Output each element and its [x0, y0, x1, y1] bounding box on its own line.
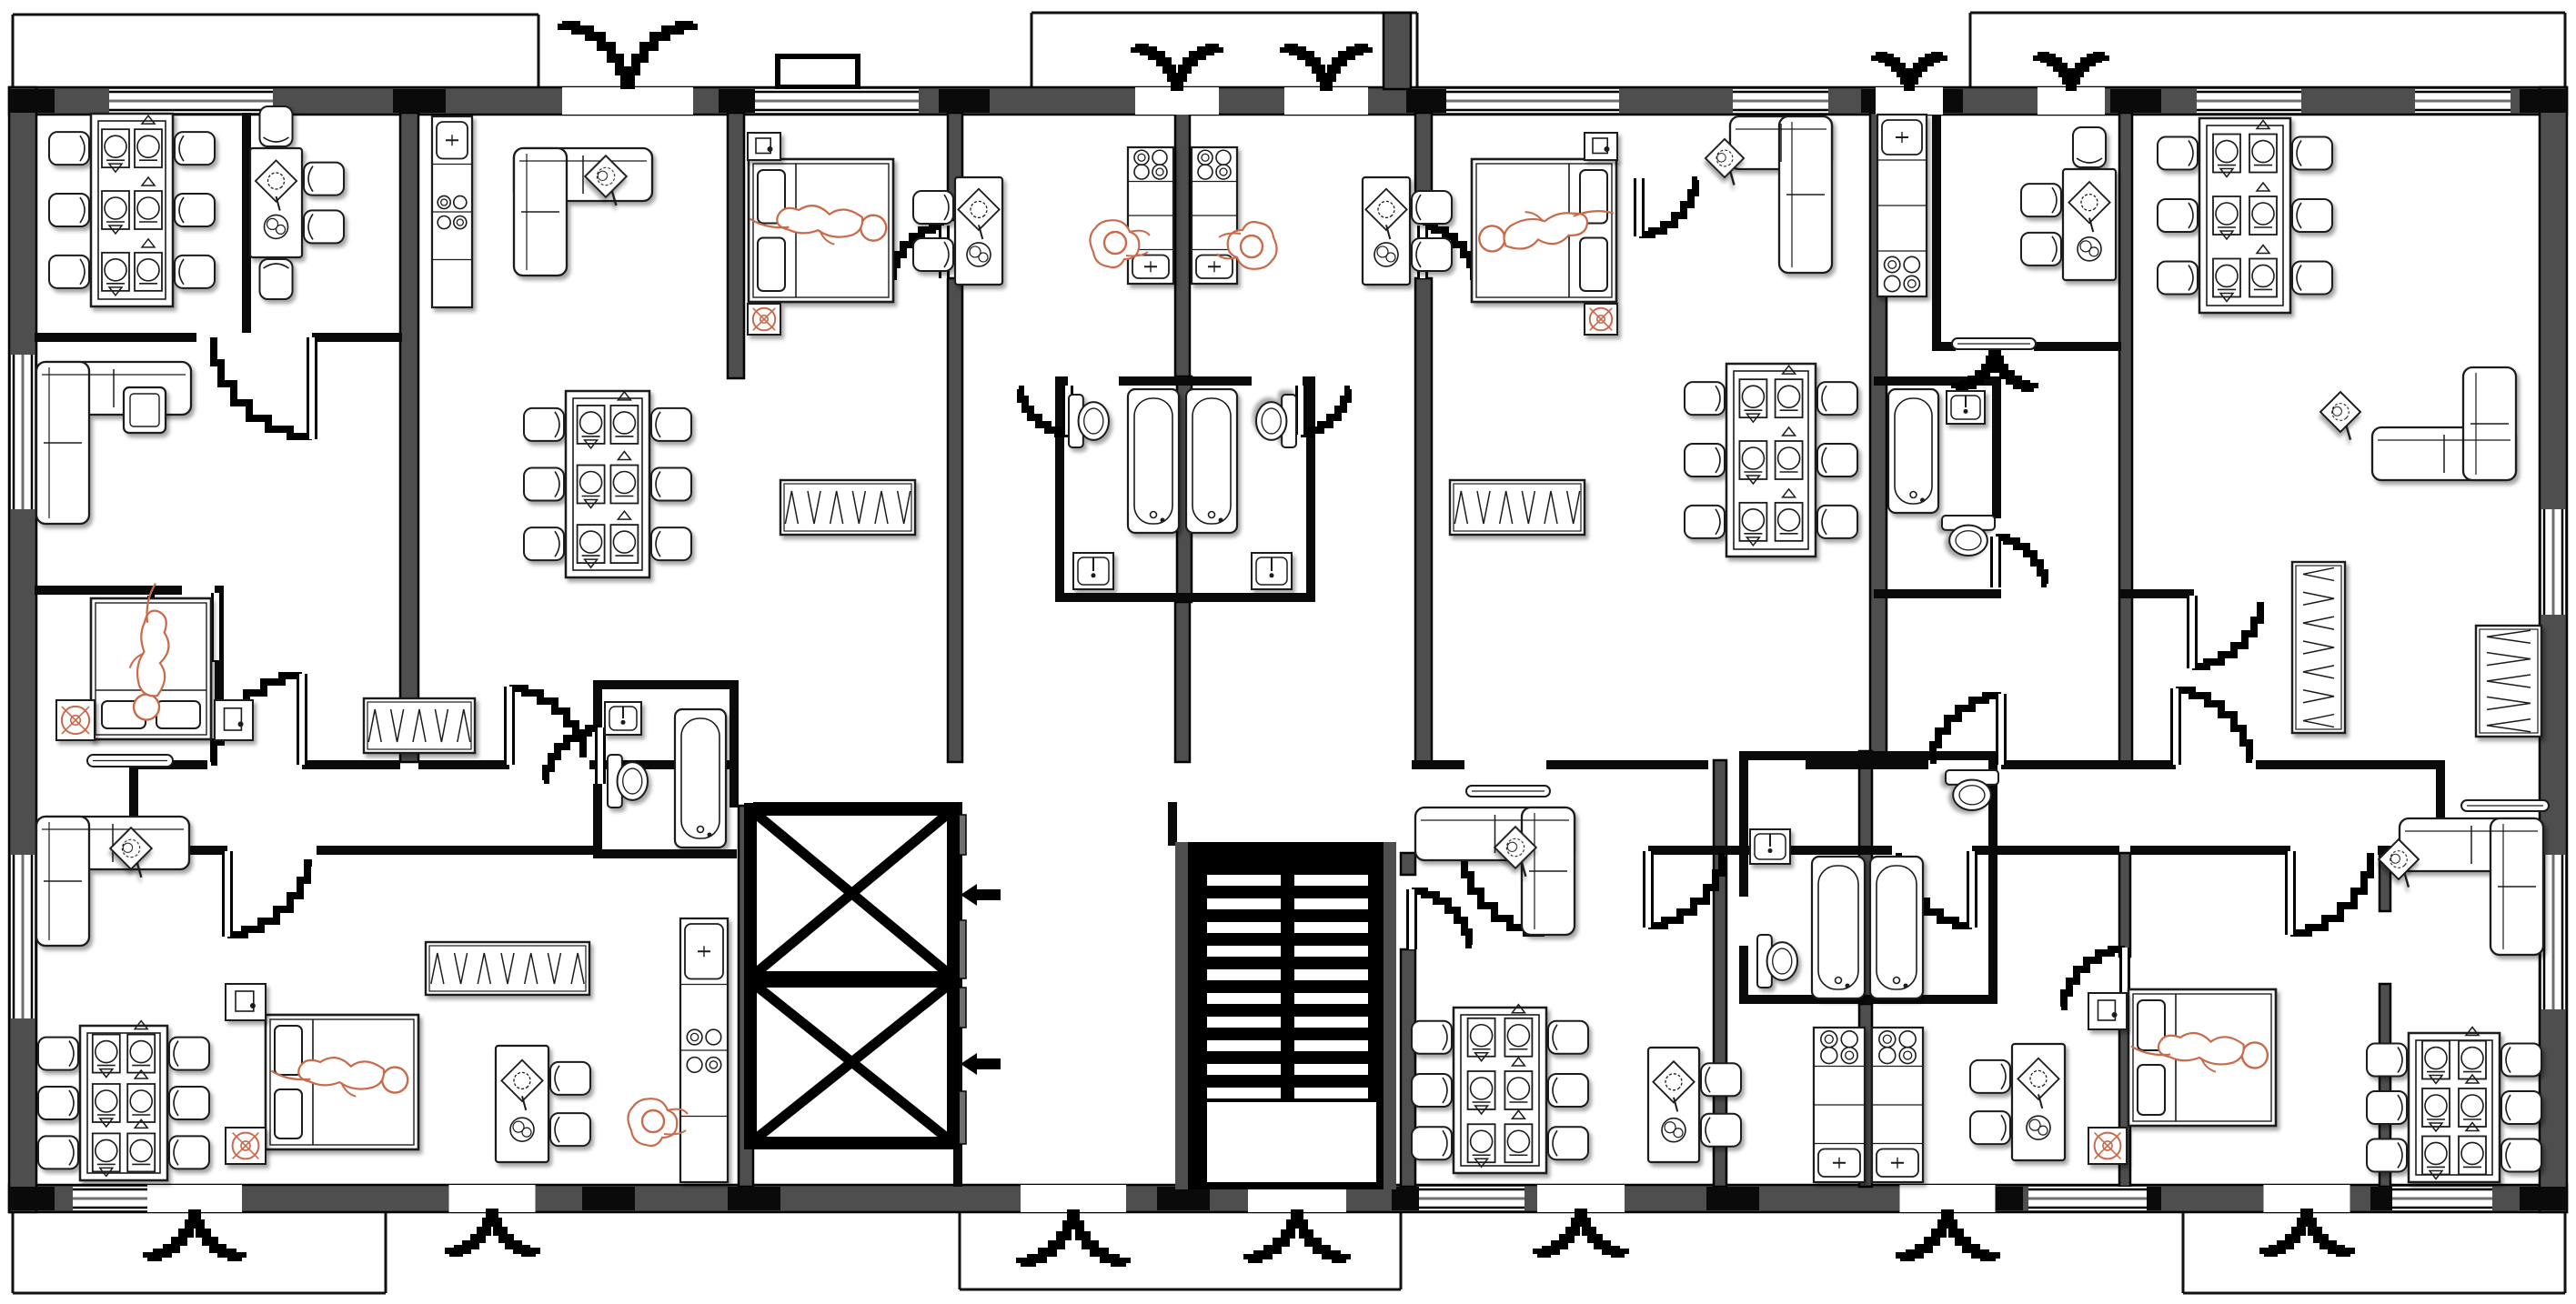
dining-table: [38, 1021, 209, 1180]
fan-unit: [226, 1128, 266, 1164]
chair: [550, 1113, 590, 1146]
wall-gray: [728, 113, 744, 378]
window-opening: [11, 355, 35, 509]
wall-partition: [1932, 113, 1941, 351]
coffee-table: [2320, 392, 2370, 441]
person-standing: [628, 1098, 688, 1146]
wall-partition: [593, 680, 739, 689]
stair-tread: [1207, 993, 1281, 1004]
window-sill: [1466, 786, 1550, 797]
stair-tread: [1207, 898, 1281, 909]
window-opening: [2541, 509, 2565, 615]
double-bed: [1472, 159, 1616, 302]
stair-tread: [1294, 898, 1368, 909]
wall-partition: [1412, 760, 1464, 769]
chair: [524, 408, 564, 441]
floor-plan-canvas: [0, 0, 2576, 1304]
double-bed: [266, 1015, 418, 1149]
wall-partition: [302, 760, 400, 769]
bathroom-sink: [1750, 829, 1790, 864]
wall-pillar: [728, 1187, 780, 1210]
french-door-notch: [562, 24, 693, 115]
wall-partition: [730, 680, 739, 807]
door-swing: [227, 851, 312, 937]
dining-table: [49, 114, 215, 306]
dining-table: [2158, 118, 2332, 313]
building-core: [750, 809, 1396, 1189]
bathtub: [1186, 389, 1237, 533]
chair: [1412, 238, 1452, 271]
wall-pillar: [1157, 1187, 1210, 1210]
window-opening: [2197, 89, 2301, 113]
wall-partition: [2256, 760, 2436, 769]
stair-tread: [1294, 1040, 1368, 1051]
corner-sofa: [1730, 116, 1832, 273]
chair: [2501, 1044, 2541, 1077]
window-opening: [11, 855, 35, 1018]
nightstand: [748, 133, 780, 160]
wall-partition: [1306, 376, 1315, 602]
chair: [304, 163, 344, 196]
chair: [1817, 444, 1857, 476]
french-door-notch: [1135, 47, 1219, 115]
chair: [1548, 1127, 1588, 1159]
french-door-notch: [1284, 47, 1368, 115]
bathtub: [1870, 857, 1923, 998]
wall-pillar: [393, 89, 446, 113]
chair: [2367, 1091, 2407, 1124]
kitchen-counter: [1128, 147, 1173, 284]
kitchen-counter: [432, 116, 472, 307]
chair: [651, 527, 691, 560]
chair: [49, 132, 89, 165]
nightstand: [1585, 133, 1617, 160]
chair: [169, 1038, 209, 1070]
door-swing: [210, 337, 312, 439]
wall-partition: [2119, 589, 2194, 598]
fan-unit: [2088, 1128, 2127, 1164]
bathroom-sink: [1073, 553, 1113, 589]
toilet: [1942, 516, 1995, 556]
french-door-notch: [1876, 55, 1943, 115]
wall-partition: [35, 586, 182, 595]
corner-sofa: [2372, 367, 2516, 480]
wall-partition: [2034, 342, 2121, 351]
french-door-notch: [1900, 1185, 1997, 1259]
french-door-notch: [1021, 1185, 1126, 1263]
wall-partition: [312, 333, 402, 342]
window-opening: [1733, 89, 1828, 113]
chair: [524, 468, 564, 501]
wall-gray: [948, 278, 962, 762]
elevator-door-arrow: [961, 1053, 1001, 1075]
wall-partition: [1648, 846, 1728, 855]
wall-gray: [2119, 853, 2130, 957]
chair: [651, 408, 691, 441]
wall-partition: [418, 760, 509, 769]
window-opening: [1446, 89, 1619, 113]
door-swing: [1996, 537, 2047, 587]
french-door-notch: [1537, 1185, 1625, 1254]
chair: [49, 194, 89, 226]
dining-table: [1412, 1005, 1588, 1173]
stair-tread: [1207, 946, 1281, 957]
corner-sofa: [2400, 818, 2543, 955]
window-sill: [87, 755, 173, 767]
wall-partition: [1739, 751, 1748, 897]
nightstand: [2088, 993, 2127, 1029]
chair: [1548, 1074, 1588, 1107]
fan-unit: [56, 700, 95, 740]
wall-partition: [1992, 376, 2001, 518]
french-door-notch: [449, 1185, 537, 1254]
stair-tread: [1207, 1088, 1281, 1098]
wall-partition: [1546, 760, 1708, 769]
kitchen-counter: [1192, 147, 1237, 284]
chair: [49, 256, 89, 288]
bathtub: [1812, 857, 1865, 998]
bathroom-sink: [1252, 553, 1292, 589]
elevator: [750, 981, 953, 1143]
double-bed: [2128, 989, 2276, 1126]
door-swing: [1412, 889, 1472, 949]
stair-tread: [1294, 875, 1368, 886]
wall-partition: [1739, 995, 1997, 1004]
stair-tread: [1207, 1064, 1281, 1075]
stair-landing: [1207, 1102, 1376, 1182]
small-table: [1970, 1044, 2066, 1160]
stair-tread: [1294, 1064, 1368, 1075]
small-table: [496, 1046, 590, 1162]
window-opening: [2541, 855, 2565, 1009]
chair: [38, 1087, 78, 1119]
door-swing: [2176, 688, 2252, 765]
french-door-notch: [147, 1185, 242, 1258]
stair-tread: [1294, 922, 1368, 933]
chair: [550, 1062, 590, 1095]
double-bed: [748, 159, 893, 302]
chair: [2367, 1044, 2407, 1077]
chair: [2158, 199, 2198, 232]
bathtub: [1128, 389, 1179, 533]
door-swing: [2192, 596, 2264, 668]
nightstand: [215, 700, 253, 740]
fan-unit: [1585, 304, 1617, 335]
stair-tread: [1207, 1017, 1281, 1028]
bathroom-sink: [1947, 391, 1985, 424]
chair: [2292, 261, 2332, 294]
stair-tread: [1294, 1088, 1368, 1098]
wall-pillar: [2520, 89, 2567, 113]
chair: [1685, 382, 1725, 415]
wall-partition: [1739, 751, 1999, 760]
chair: [1970, 1111, 2010, 1144]
wall-gray: [2540, 87, 2567, 1212]
wardrobe: [364, 698, 475, 753]
dining-table: [2367, 1028, 2541, 1182]
toilet: [1256, 395, 1296, 447]
wall-pillar: [582, 1187, 635, 1210]
wall-partition: [2001, 760, 2176, 769]
toilet: [1757, 935, 1797, 988]
stair-tread: [1207, 969, 1281, 980]
wall-partition: [593, 849, 737, 858]
bathroom-sink: [605, 702, 641, 735]
wall-pillar: [939, 89, 990, 113]
wall-gray: [1384, 13, 1411, 89]
door-swing: [2290, 851, 2374, 935]
window-sill: [1952, 338, 2036, 349]
stair-tread: [1294, 946, 1368, 957]
chair: [38, 1038, 78, 1070]
french-door-notch: [1248, 1185, 1346, 1259]
wall-partition: [1168, 802, 1177, 846]
window-opening: [2028, 1187, 2147, 1210]
chair: [1412, 1074, 1452, 1107]
chair: [175, 256, 215, 288]
chair: [169, 1087, 209, 1119]
chair: [260, 259, 293, 299]
wall-pillar: [1706, 1187, 1759, 1210]
stair-tread: [1207, 1040, 1281, 1051]
chair: [1412, 1021, 1452, 1054]
stair-tread: [1294, 969, 1368, 980]
floor-plan: [0, 0, 2576, 1304]
bathtub: [1888, 389, 1938, 513]
wall-gray: [1401, 853, 1415, 875]
chair: [175, 132, 215, 165]
chair: [1970, 1060, 2010, 1093]
chair: [304, 210, 344, 243]
chair: [1412, 1127, 1452, 1159]
elevator: [750, 809, 953, 978]
corner-sofa: [36, 817, 189, 946]
stair-tread: [1294, 993, 1368, 1004]
chair: [169, 1136, 209, 1169]
chair: [2501, 1091, 2541, 1124]
shaft-box: [778, 56, 858, 87]
chair: [38, 1136, 78, 1169]
chair: [2292, 199, 2332, 232]
wall-gray: [1175, 602, 1190, 762]
chair: [651, 468, 691, 501]
wall-partition: [1874, 589, 2001, 598]
french-door-notch: [2038, 55, 2105, 115]
wardrobe: [2476, 626, 2541, 737]
small-table: [2021, 127, 2117, 280]
door-swing: [1639, 178, 1697, 236]
small-table: [250, 106, 344, 299]
window-opening: [109, 89, 273, 113]
wall-gray: [2119, 113, 2132, 762]
wall-gray: [9, 87, 36, 1212]
chair: [1817, 382, 1857, 415]
chair: [2158, 261, 2198, 294]
stair-tread: [1207, 875, 1281, 886]
wall-pillar: [2110, 89, 2161, 113]
chair: [1817, 506, 1857, 538]
wall-pillar: [9, 89, 55, 113]
wall-pillar: [2520, 1187, 2567, 1210]
double-bed: [91, 582, 211, 739]
wall-gray: [1714, 760, 1726, 853]
chair: [524, 527, 564, 560]
chair: [2501, 1138, 2541, 1171]
wall-gray: [400, 113, 418, 762]
nightstand: [226, 984, 266, 1020]
wardrobe: [1450, 480, 1585, 535]
wall-partition: [1806, 760, 1928, 769]
wall-pillar: [9, 1187, 55, 1210]
chair: [1701, 1114, 1741, 1147]
elevator-door-arrow: [961, 884, 1001, 906]
chair: [1548, 1021, 1588, 1054]
dining-table: [524, 391, 691, 577]
french-door-notch: [2264, 1185, 2351, 1254]
stair-tread: [1294, 1017, 1368, 1028]
kitchen-counter: [1814, 1028, 1865, 1182]
chair: [1701, 1063, 1741, 1096]
staircase: [1175, 842, 1396, 1189]
side-table: [124, 387, 166, 433]
corner-sofa: [514, 148, 652, 276]
window-sill: [2461, 800, 2549, 811]
chair: [1412, 191, 1452, 224]
chair: [2073, 127, 2106, 167]
chair: [2021, 233, 2061, 266]
wardrobe: [426, 942, 589, 995]
stair-tread: [1207, 922, 1281, 933]
chair: [913, 191, 953, 224]
wardrobe: [2292, 562, 2345, 733]
bathtub: [675, 709, 726, 848]
kitchen-counter: [1877, 115, 1927, 296]
corner-sofa: [36, 362, 191, 524]
wall-partition: [35, 333, 196, 342]
window-opening: [755, 89, 919, 113]
wall-partition: [317, 846, 597, 855]
dining-table: [1685, 364, 1857, 557]
chair: [1685, 506, 1725, 538]
chair: [2292, 137, 2332, 170]
chair: [2021, 184, 2061, 216]
kitchen-counter: [680, 918, 728, 1182]
chair: [175, 194, 215, 226]
chair: [1685, 444, 1725, 476]
wall-partition: [2130, 846, 2290, 855]
toilet: [1069, 395, 1109, 447]
wall-partition: [1055, 593, 1315, 602]
wall-partition: [1119, 376, 1252, 386]
door-swing: [544, 727, 600, 784]
window-opening: [1419, 1187, 1524, 1210]
fan-unit: [748, 304, 780, 335]
wall-gray: [1415, 278, 1432, 762]
wardrobe: [780, 480, 915, 535]
chair: [260, 106, 293, 146]
chair: [913, 238, 953, 271]
wall-gray: [1175, 113, 1190, 378]
window-opening: [2392, 1187, 2492, 1210]
kitchen-counter: [1872, 1028, 1923, 1182]
chair: [2367, 1138, 2407, 1171]
chair: [2158, 137, 2198, 170]
window-opening: [2415, 89, 2511, 113]
